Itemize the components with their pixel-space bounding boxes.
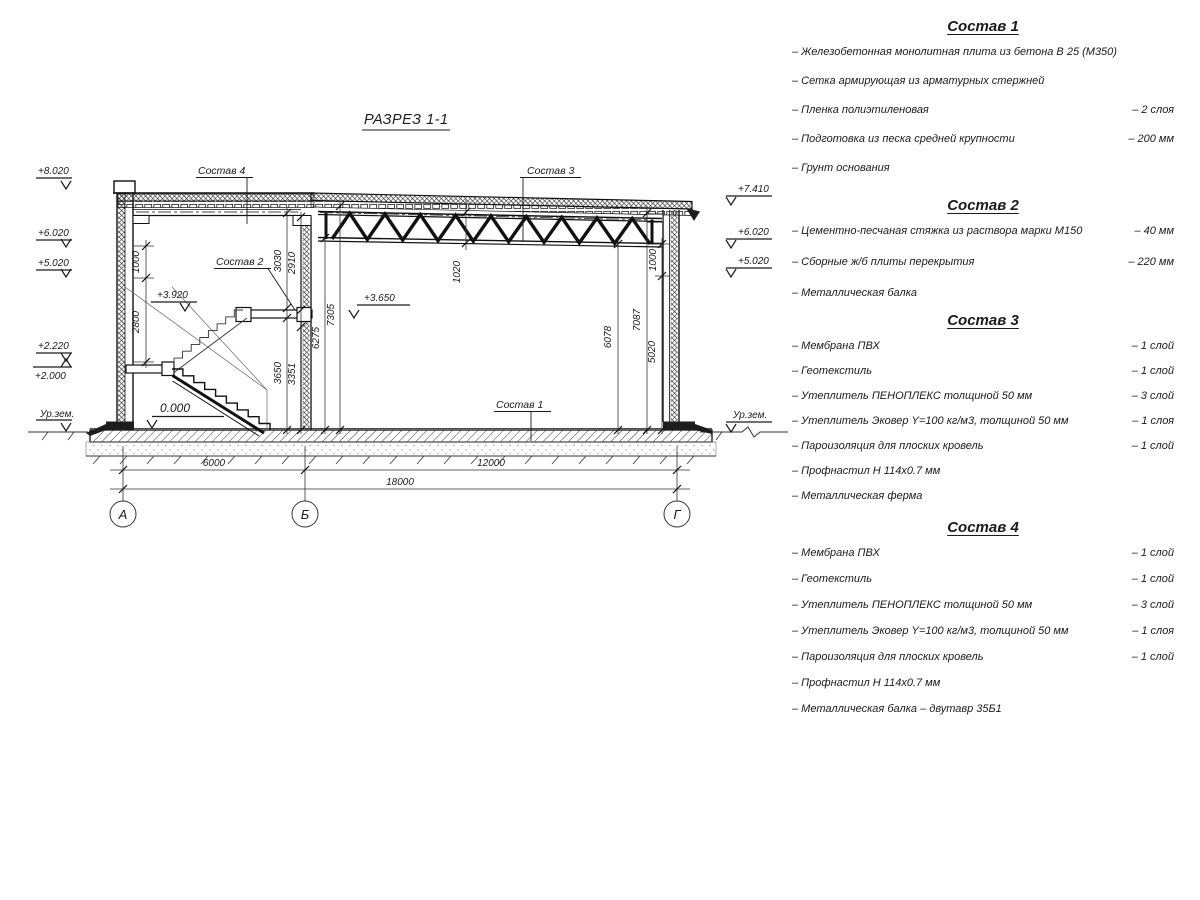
dim-2910: 2910 <box>287 251 298 275</box>
list-item: – Мембрана ПВХ– 1 слой <box>792 547 1174 559</box>
mark-6020-right: +6.020 <box>738 227 769 238</box>
floor-and-ground <box>28 422 788 465</box>
composition-4-title: Состав 4 <box>792 519 1174 536</box>
drawing-sheet: РАЗРЕЗ 1-1 <box>0 0 1200 900</box>
drawing-title: РАЗРЕЗ 1-1 <box>362 112 450 130</box>
list-item: – Пленка полиэтиленовая– 2 слоя <box>792 104 1174 116</box>
list-item: – Подготовка из песка средней крупности–… <box>792 133 1174 145</box>
mark-2220: +2.220 <box>38 341 69 352</box>
leader-sostav1: Состав 1 <box>496 399 543 411</box>
composition-1-title: Состав 1 <box>792 18 1174 35</box>
dim-6000: 6000 <box>203 458 226 469</box>
mark-7410: +7.410 <box>738 184 769 195</box>
list-item: – Грунт основания <box>792 162 1174 174</box>
list-item: – Железобетонная монолитная плита из бет… <box>792 46 1174 58</box>
level-marks-right: +7.410 +6.020 +5.020 Ур.зем. <box>726 184 772 432</box>
mark-urzem-left: Ур.зем. <box>39 409 74 420</box>
mark-3920: +3.920 <box>157 290 188 301</box>
list-item: – Утеплитель ПЕНОПЛЕКС толщиной 50 мм– 3… <box>792 390 1174 402</box>
bottom-dims: 6000 12000 18000 А Б Г <box>110 446 690 527</box>
ground-hatch-ticks <box>93 456 694 464</box>
dim-7087: 7087 <box>632 308 643 331</box>
mark-3650: +3.650 <box>364 293 395 304</box>
list-item: – Металлическая балка <box>792 287 1174 299</box>
composition-3: Состав 3 – Мембрана ПВХ– 1 слой – Геотек… <box>792 312 1174 515</box>
dim-5020: 5020 <box>647 340 658 363</box>
mark-urzem-right: Ур.зем. <box>732 410 767 421</box>
dim-left-1000: 1000 <box>131 250 142 273</box>
list-item: – Металлическая ферма <box>792 490 1174 502</box>
list-item: – Мембрана ПВХ– 1 слой <box>792 340 1174 352</box>
mark-5020-left: +5.020 <box>38 258 69 269</box>
composition-2: Состав 2 – Цементно-песчаная стяжка из р… <box>792 197 1174 318</box>
list-item: – Геотекстиль– 1 слой <box>792 573 1174 585</box>
dim-18000: 18000 <box>386 477 414 488</box>
dim-3650: 3650 <box>273 361 284 384</box>
level-marks-left: +8.020 +6.020 +5.020 +2.220 +2.000 Ур.зе… <box>33 166 74 431</box>
dim-6275: 6275 <box>311 326 322 349</box>
list-item: – Сборные ж/б плиты перекрытия– 220 мм <box>792 256 1174 268</box>
mark-8020: +8.020 <box>38 166 69 177</box>
list-item: – Утеплитель ПЕНОПЛЕКС толщиной 50 мм– 3… <box>792 599 1174 611</box>
composition-2-title: Состав 2 <box>792 197 1174 214</box>
composition-4: Состав 4 – Мембрана ПВХ– 1 слой – Геотек… <box>792 519 1174 729</box>
leader-sostav4: Состав 4 <box>198 165 246 177</box>
composition-3-title: Состав 3 <box>792 312 1174 329</box>
mark-0000: 0.000 <box>160 401 190 415</box>
mark-2000: +2.000 <box>35 371 66 382</box>
list-item: – Утеплитель Эковер Y=100 кг/м3, толщино… <box>792 415 1174 427</box>
axis-b: Б <box>301 507 310 522</box>
dim-1020: 1020 <box>452 260 463 283</box>
title-text: РАЗРЕЗ 1-1 <box>364 112 449 128</box>
axis-a: А <box>118 507 128 522</box>
dim-right-1000: 1000 <box>648 248 659 271</box>
dim-left-2800: 2800 <box>131 310 142 334</box>
axis-g: Г <box>673 507 681 522</box>
composition-1: Состав 1 – Железобетонная монолитная пли… <box>792 18 1174 191</box>
stairs-and-slabs <box>125 287 312 436</box>
mark-5020-right: +5.020 <box>738 256 769 267</box>
truss <box>318 212 662 248</box>
list-item: – Металлическая балка – двутавр 35Б1 <box>792 703 1174 715</box>
list-item: – Цементно-песчаная стяжка из раствора м… <box>792 225 1174 237</box>
leader-sostav3: Состав 3 <box>527 165 575 177</box>
list-item: – Пароизоляция для плоских кровель– 1 сл… <box>792 651 1174 663</box>
leader-sostav2: Состав 2 <box>216 256 264 268</box>
list-item: – Пароизоляция для плоских кровель– 1 сл… <box>792 440 1174 452</box>
list-item: – Профнастил Н 114х0.7 мм <box>792 465 1174 477</box>
dim-3030: 3030 <box>273 249 284 272</box>
mark-6020-left: +6.020 <box>38 228 69 239</box>
dim-7305: 7305 <box>326 303 337 326</box>
dim-3351: 3351 <box>287 363 298 385</box>
list-item: – Геотекстиль– 1 слой <box>792 365 1174 377</box>
dim-6078: 6078 <box>603 325 614 348</box>
dim-12000: 12000 <box>477 458 505 469</box>
list-item: – Утеплитель Эковер Y=100 кг/м3, толщино… <box>792 625 1174 637</box>
list-item: – Профнастил Н 114х0.7 мм <box>792 677 1174 689</box>
list-item: – Сетка армирующая из арматурных стержне… <box>792 75 1174 87</box>
